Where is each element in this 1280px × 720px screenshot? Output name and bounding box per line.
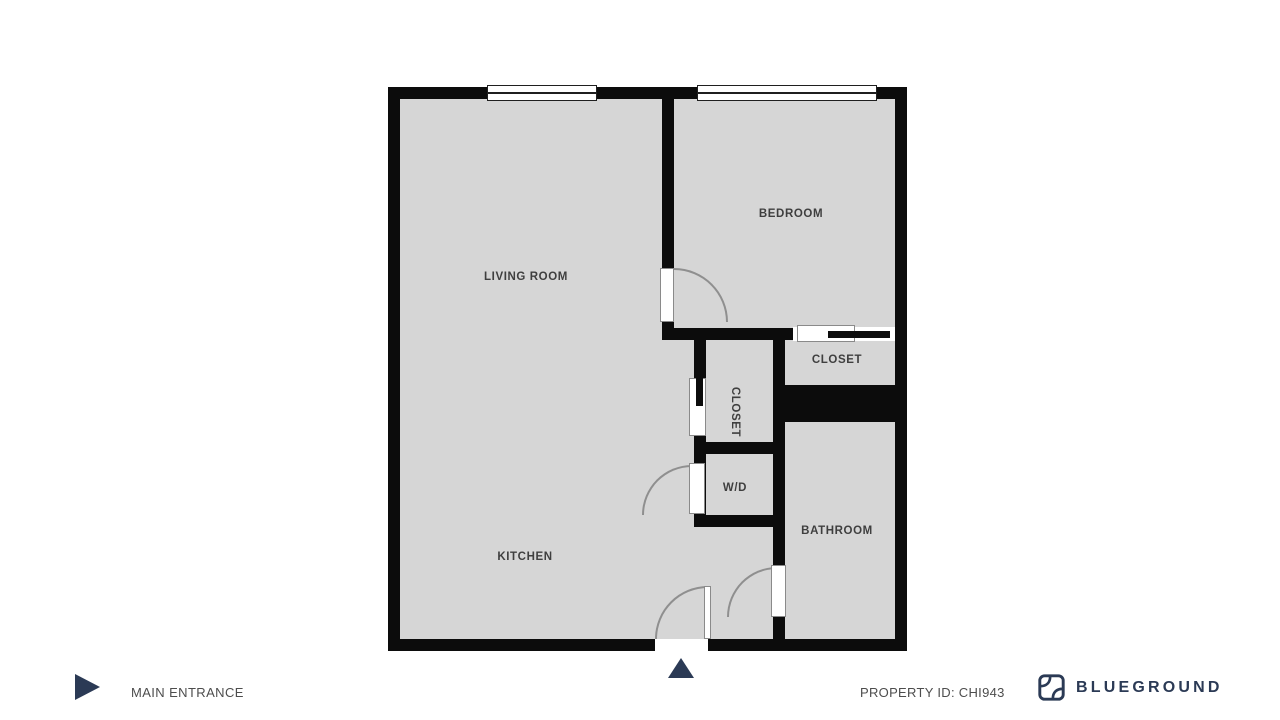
- label-closet-middle: CLOSET: [729, 387, 741, 437]
- entrance-opening: [655, 639, 708, 651]
- wall-wd-bottom: [694, 515, 785, 527]
- label-closet-right: CLOSET: [812, 354, 862, 366]
- label-bathroom: BATHROOM: [801, 525, 873, 537]
- window-bedroom: [697, 85, 877, 101]
- wall-block-band: [773, 385, 895, 422]
- entrance-triangle-right-icon: [75, 674, 100, 700]
- brand-lockup: BLUEGROUND: [1038, 674, 1223, 701]
- wd-door-leaf: [689, 463, 705, 514]
- floor-area: [394, 93, 901, 645]
- entrance-marker-triangle-up-icon: [668, 658, 694, 678]
- wall-bottom: [388, 639, 907, 651]
- entrance-door-leaf: [704, 586, 711, 639]
- closet-pocket-door-panel: [696, 378, 703, 406]
- main-entrance-label: MAIN ENTRANCE: [131, 685, 244, 700]
- window-living-room: [487, 85, 597, 101]
- label-bedroom: BEDROOM: [759, 208, 823, 220]
- label-kitchen: KITCHEN: [497, 551, 552, 563]
- wall-right: [895, 87, 907, 651]
- blueground-logo-icon: [1038, 674, 1065, 701]
- label-wd: W/D: [723, 482, 747, 494]
- wall-left: [388, 87, 400, 651]
- property-id-label: PROPERTY ID: CHI943: [860, 685, 1005, 700]
- window-pane-divider: [698, 92, 876, 94]
- bathroom-door-leaf: [771, 565, 786, 617]
- closet-sliding-door-track: [828, 331, 890, 338]
- floor-plan: LIVING ROOM KITCHEN BEDROOM CLOSET CLOSE…: [388, 87, 907, 651]
- wall-wd-top: [694, 442, 785, 454]
- window-pane-divider: [488, 92, 596, 94]
- bedroom-door-leaf: [660, 268, 674, 322]
- brand-name: BLUEGROUND: [1076, 679, 1223, 697]
- label-living-room: LIVING ROOM: [484, 271, 568, 283]
